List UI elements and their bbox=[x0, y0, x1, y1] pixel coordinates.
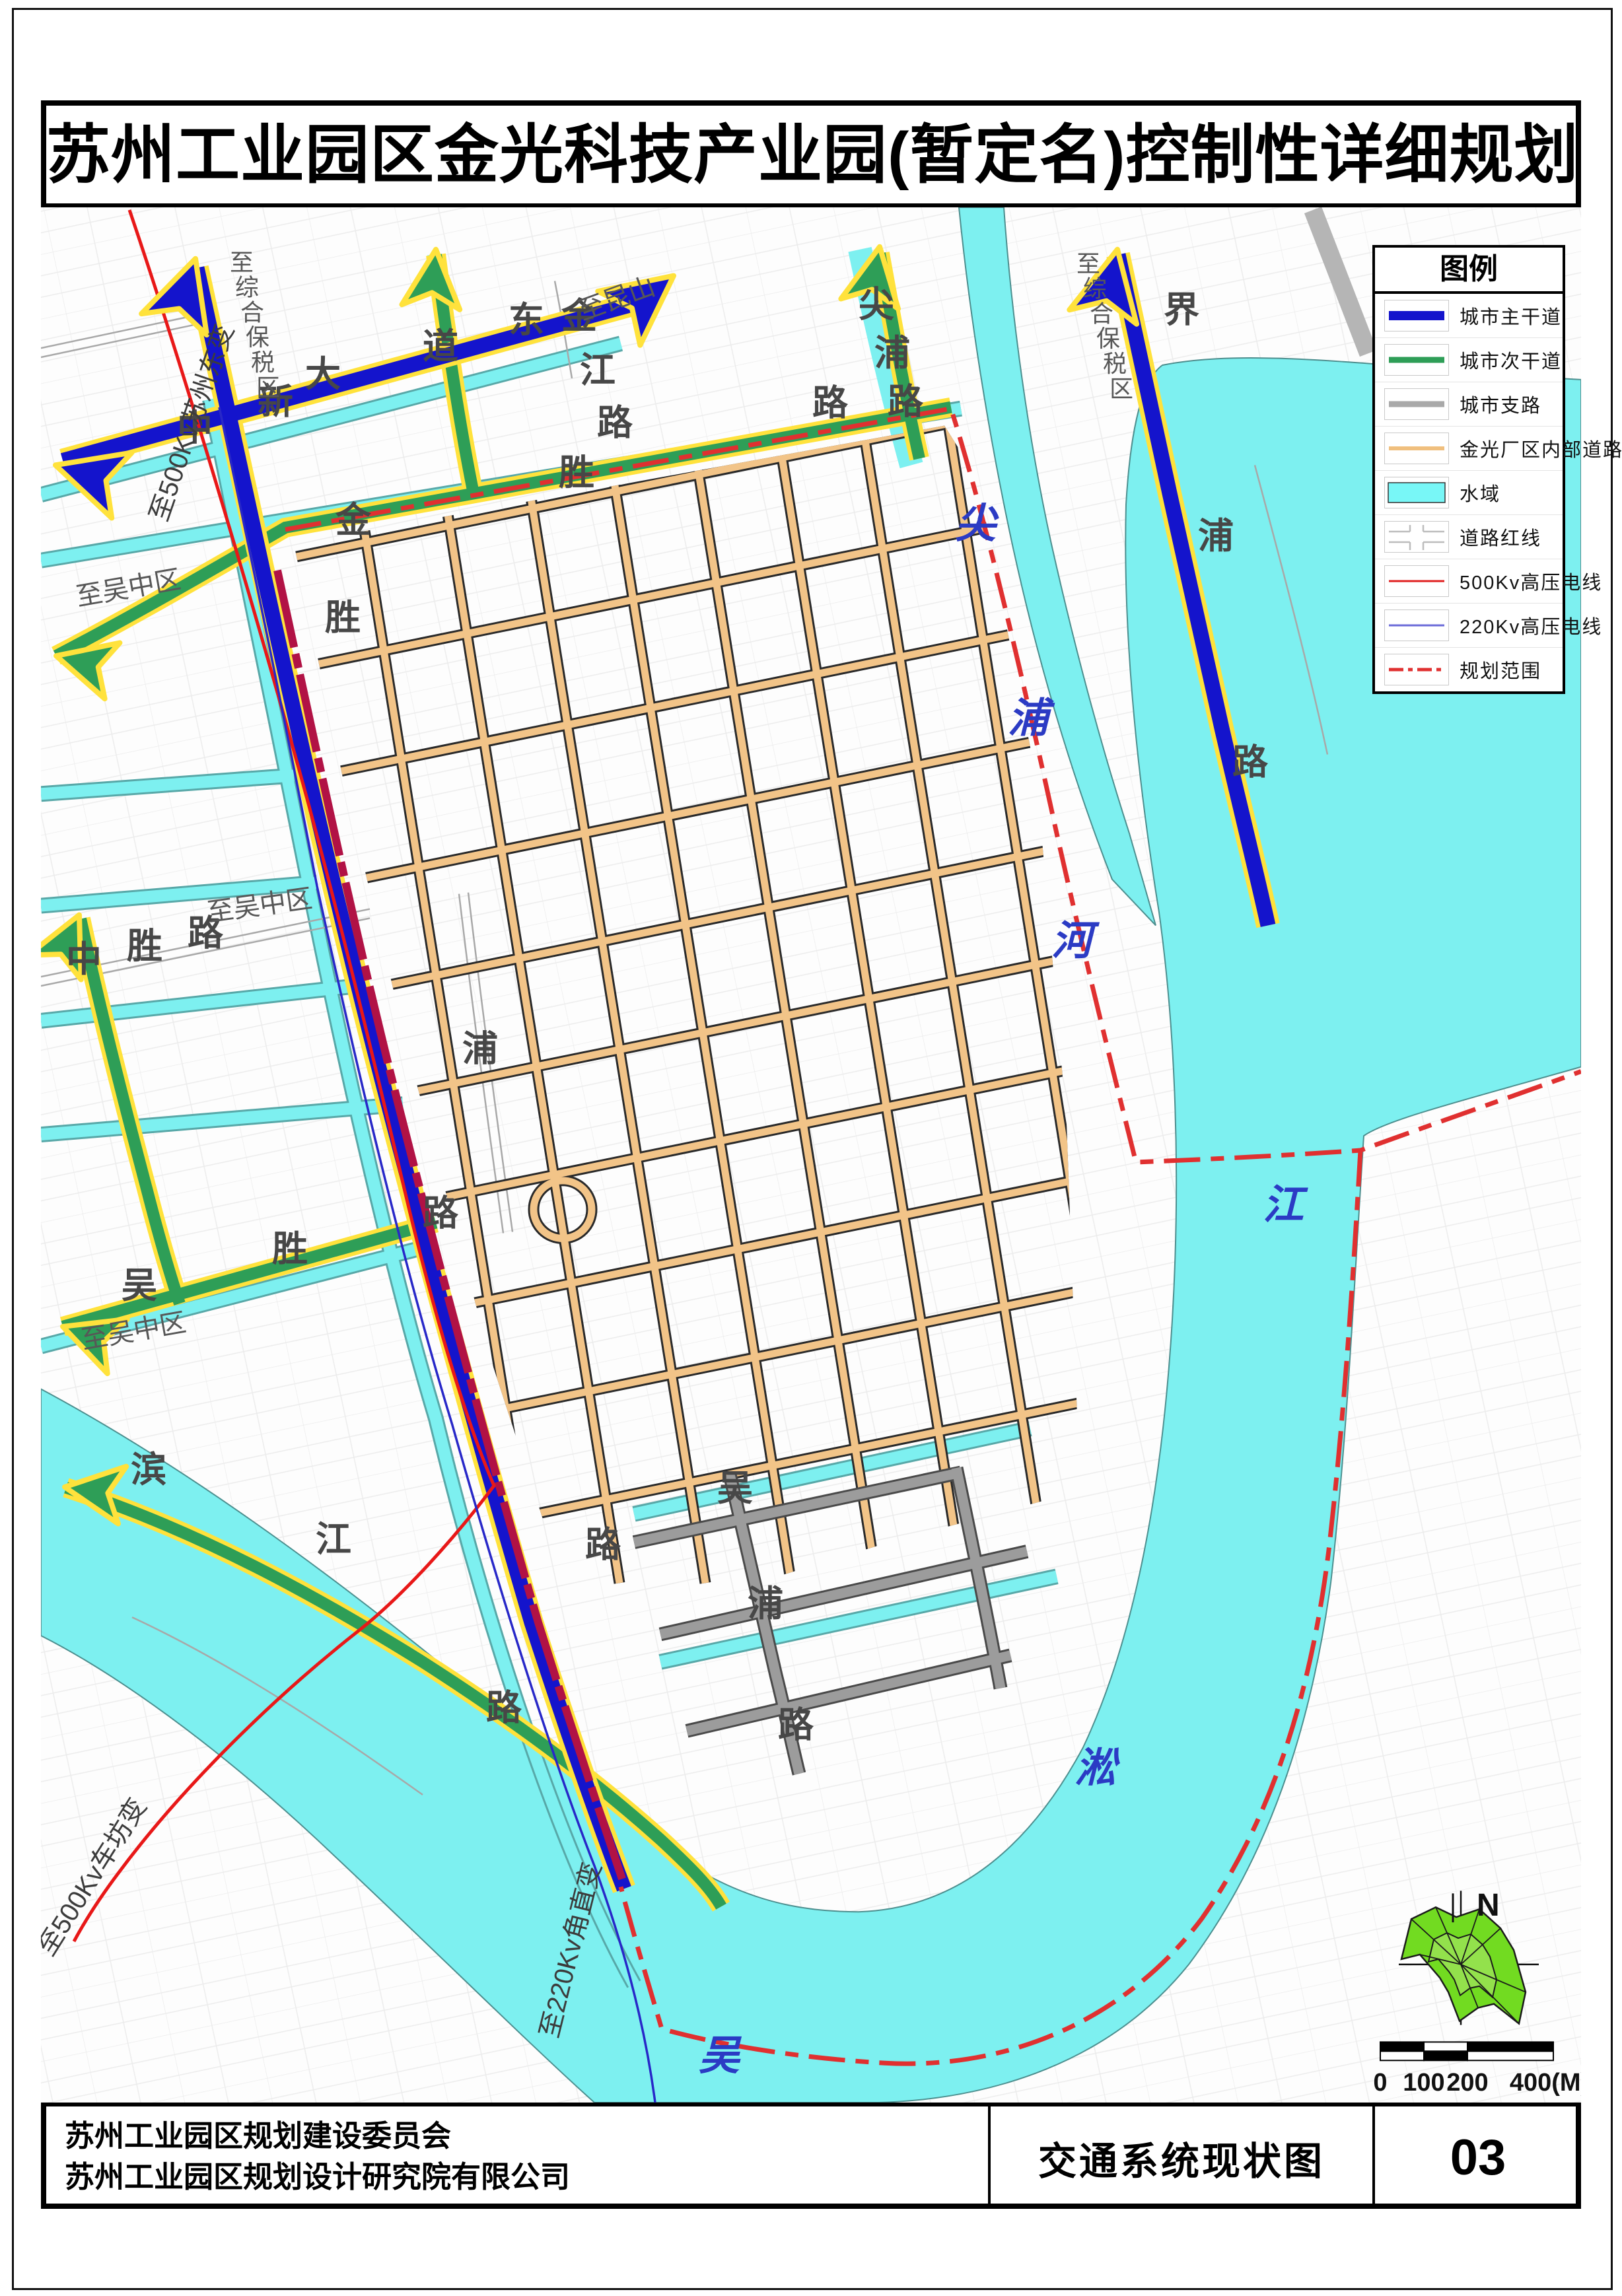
map-label: 吴 bbox=[699, 2033, 742, 2079]
org-institute: 苏州工业园区规划设计研究院有限公司 bbox=[65, 2157, 988, 2198]
map-label: 路 bbox=[888, 382, 923, 422]
map-label: 江 bbox=[1263, 1183, 1308, 1228]
legend-item-label: 城市次干道 bbox=[1460, 346, 1562, 374]
legend-item: 城市支路 bbox=[1375, 382, 1563, 427]
legend-swatch-icon bbox=[1384, 344, 1449, 376]
legend-item: 500Kv高压电线 bbox=[1375, 559, 1563, 604]
legend-items: 城市主干道城市次干道城市支路金光厂区内部道路水域道路红线500Kv高压电线220… bbox=[1375, 294, 1563, 691]
map-label: 路 bbox=[585, 1525, 621, 1565]
map-label: 路 bbox=[486, 1688, 522, 1728]
legend-item-label: 金光厂区内部道路 bbox=[1460, 435, 1622, 462]
legend-item: 220Kv高压电线 bbox=[1375, 604, 1563, 648]
map-label: 尖 bbox=[955, 501, 999, 547]
map-label: 江 bbox=[580, 351, 616, 390]
map-label: 界 bbox=[1164, 290, 1199, 330]
map-label: 100 bbox=[1403, 2069, 1444, 2097]
map-label: 尖 bbox=[859, 285, 894, 324]
organizations-cell: 苏州工业园区规划建设委员会 苏州工业园区规划设计研究院有限公司 bbox=[41, 2106, 991, 2209]
map-label: 综 bbox=[1083, 275, 1107, 302]
map-label: 税 bbox=[1103, 350, 1127, 377]
map-label: 路 bbox=[1232, 743, 1268, 783]
map-label: 吴 bbox=[122, 1266, 157, 1305]
legend-swatch-icon bbox=[1384, 565, 1449, 597]
map-label: 区 bbox=[1110, 375, 1133, 402]
traffic-map: 中新大道东金胜路金江路尖浦路界浦路胜浦路中胜路吴胜路滨江路吴浦路至吴中区至吴中区… bbox=[41, 207, 1581, 2103]
map-label: 东 bbox=[509, 300, 544, 340]
map-label: 保 bbox=[1096, 325, 1120, 352]
legend: 图例 城市主干道城市次干道城市支路金光厂区内部道路水域道路红线500Kv高压电线… bbox=[1372, 245, 1565, 694]
map-label: 胜 bbox=[559, 453, 594, 493]
map-label: 道 bbox=[423, 327, 458, 366]
legend-item: 城市主干道 bbox=[1375, 294, 1563, 338]
legend-swatch-icon bbox=[1384, 654, 1449, 685]
map-label: 中 bbox=[66, 940, 102, 979]
map-layers: 中新大道东金胜路金江路尖浦路界浦路胜浦路中胜路吴胜路滨江路吴浦路至吴中区至吴中区… bbox=[41, 207, 1581, 2103]
legend-item-label: 水域 bbox=[1460, 479, 1500, 506]
map-label: 区 bbox=[256, 374, 280, 401]
legend-item: 水域 bbox=[1375, 471, 1563, 515]
map-label: 合 bbox=[1090, 300, 1113, 327]
legend-item: 道路红线 bbox=[1375, 515, 1563, 559]
legend-swatch-icon bbox=[1384, 433, 1449, 464]
map-label: 400(M) bbox=[1510, 2069, 1581, 2097]
map-label: 合 bbox=[240, 298, 264, 326]
map-label: 浦 bbox=[874, 333, 910, 373]
map-label: N bbox=[1477, 1888, 1500, 1923]
map-label: 胜 bbox=[325, 598, 361, 637]
plan-sheet: 苏州工业园区金光科技产业园(暂定名)控制性详细规划 bbox=[0, 0, 1622, 2296]
map-label: 江 bbox=[316, 1520, 351, 1560]
map-label: 淞 bbox=[1075, 1745, 1120, 1791]
legend-item: 金光厂区内部道路 bbox=[1375, 427, 1563, 471]
scale-bar bbox=[1380, 2042, 1553, 2060]
legend-title: 图例 bbox=[1375, 248, 1563, 294]
legend-swatch-icon bbox=[1384, 477, 1449, 508]
legend-swatch-icon bbox=[1384, 521, 1449, 553]
map-label: 路 bbox=[597, 403, 633, 443]
map-area: 中新大道东金胜路金江路尖浦路界浦路胜浦路中胜路吴胜路滨江路吴浦路至吴中区至吴中区… bbox=[41, 203, 1581, 2106]
sheet-number: 03 bbox=[1375, 2106, 1581, 2209]
map-label: 滨 bbox=[131, 1450, 166, 1490]
map-label: 路 bbox=[423, 1194, 458, 1234]
legend-item: 规划范围 bbox=[1375, 648, 1563, 691]
map-label: 胜 bbox=[272, 1229, 308, 1269]
legend-item-label: 500Kv高压电线 bbox=[1460, 567, 1602, 595]
map-label: 浦 bbox=[1198, 516, 1234, 556]
map-label: 200 bbox=[1446, 2069, 1488, 2097]
org-committee: 苏州工业园区规划建设委员会 bbox=[65, 2116, 988, 2157]
map-label: 浦 bbox=[748, 1584, 783, 1624]
page-title: 苏州工业园区金光科技产业园(暂定名)控制性详细规划 bbox=[46, 111, 1576, 197]
map-label: 综 bbox=[235, 274, 259, 301]
map-label: 路 bbox=[812, 384, 848, 423]
legend-swatch-icon bbox=[1384, 388, 1449, 420]
legend-item-label: 规划范围 bbox=[1460, 656, 1541, 683]
map-label: 路 bbox=[778, 1705, 814, 1745]
map-label: 大 bbox=[305, 355, 341, 394]
sheet-title: 交通系统现状图 bbox=[991, 2106, 1375, 2209]
title-block: 苏州工业园区规划建设委员会 苏州工业园区规划设计研究院有限公司 交通系统现状图 … bbox=[41, 2106, 1581, 2209]
legend-item-label: 220Kv高压电线 bbox=[1460, 611, 1602, 639]
legend-item: 城市次干道 bbox=[1375, 338, 1563, 382]
legend-swatch-icon bbox=[1384, 609, 1449, 641]
map-label: 0 bbox=[1373, 2069, 1387, 2097]
map-label: 浦 bbox=[1008, 696, 1055, 742]
map-label: 税 bbox=[251, 349, 275, 376]
map-label: 至 bbox=[1076, 250, 1100, 277]
legend-item-label: 城市主干道 bbox=[1460, 302, 1562, 330]
map-label: 至 bbox=[230, 249, 254, 276]
map-label: 吴 bbox=[717, 1469, 753, 1508]
map-label: 浦 bbox=[462, 1029, 498, 1069]
legend-item-label: 城市支路 bbox=[1460, 390, 1541, 418]
legend-swatch-icon bbox=[1384, 300, 1449, 331]
map-label: 保 bbox=[246, 324, 269, 351]
legend-item-label: 道路红线 bbox=[1460, 523, 1541, 551]
map-label: 胜 bbox=[127, 926, 162, 966]
map-label: 金 bbox=[335, 501, 372, 540]
